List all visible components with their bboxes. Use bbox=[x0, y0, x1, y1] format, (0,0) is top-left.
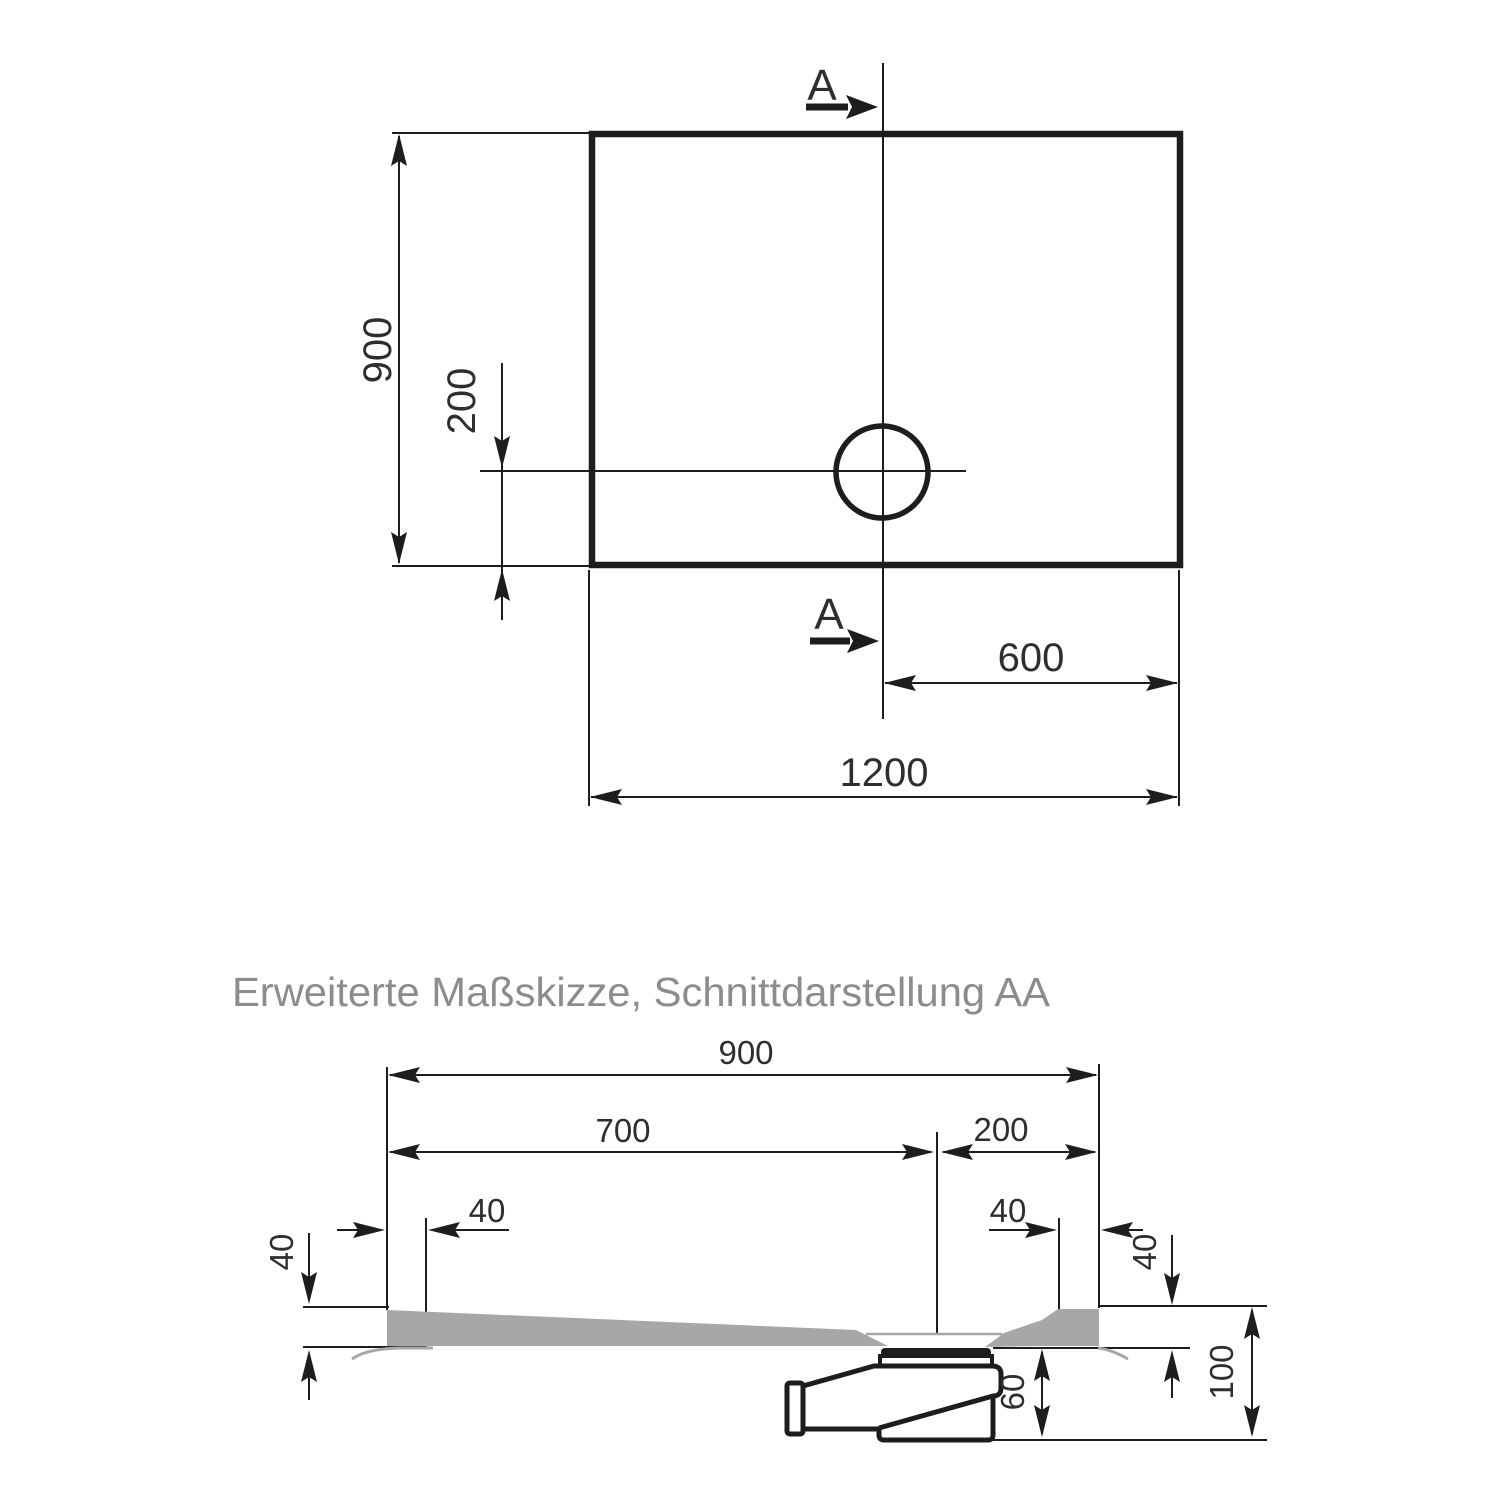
section-drain-right-label: 200 bbox=[973, 1111, 1028, 1148]
top-view: A A 900 200 bbox=[356, 61, 1180, 806]
dimension-rim-right-40: 40 bbox=[989, 1192, 1143, 1238]
dimension-width-1200: 1200 bbox=[590, 751, 1178, 805]
total-height-label: 100 bbox=[1203, 1344, 1240, 1399]
drain-flange bbox=[881, 1348, 991, 1357]
corner-lip-right bbox=[1098, 1348, 1128, 1359]
rim-right-label: 40 bbox=[990, 1192, 1027, 1229]
section-drain-left-label: 700 bbox=[595, 1112, 650, 1149]
dimension-height-900: 900 bbox=[356, 133, 589, 566]
section-overall-label: 900 bbox=[718, 1034, 773, 1071]
edge-right-label: 40 bbox=[1126, 1234, 1163, 1271]
tray-outline-top-view bbox=[592, 134, 1180, 565]
tray-profile-section bbox=[352, 1309, 1128, 1359]
dimension-total-100: 100 bbox=[1203, 1307, 1260, 1437]
drain-trap bbox=[787, 1348, 1001, 1440]
corner-lip-left bbox=[352, 1348, 433, 1359]
rim-left-label: 40 bbox=[469, 1192, 506, 1229]
tray-body-left bbox=[387, 1310, 888, 1346]
dimension-rim-left-40: 40 bbox=[337, 1192, 509, 1238]
edge-left-label: 40 bbox=[263, 1234, 300, 1271]
trap-height-label: 60 bbox=[994, 1374, 1031, 1411]
section-arrow-top-icon bbox=[846, 95, 878, 119]
dimension-drain-right-600: 600 bbox=[884, 636, 1178, 691]
drain-right-dimension-label: 600 bbox=[998, 636, 1065, 680]
drain-trap-outlet-cap bbox=[787, 1383, 803, 1434]
dimension-section-700: 700 bbox=[388, 1112, 934, 1160]
section-marker-top: A bbox=[806, 61, 878, 119]
drain-offset-dimension-label: 200 bbox=[440, 368, 484, 435]
section-title: Erweiterte Maßskizze, Schnittdarstellung… bbox=[232, 969, 1051, 1015]
section-label-top: A bbox=[807, 61, 837, 110]
dimension-section-200: 200 bbox=[941, 1111, 1097, 1160]
width-dimension-label: 1200 bbox=[840, 751, 929, 795]
drawing-canvas: A A 900 200 bbox=[0, 0, 1500, 1500]
section-arrow-bottom-icon bbox=[847, 629, 879, 653]
section-label-bottom: A bbox=[814, 590, 844, 639]
dimension-trap-60: 60 bbox=[994, 1349, 1050, 1437]
tray-body-right bbox=[985, 1309, 1099, 1347]
dimension-drain-offset-200: 200 bbox=[440, 363, 510, 620]
technical-drawing-page: A A 900 200 bbox=[0, 0, 1500, 1500]
dimension-section-900: 900 bbox=[388, 1034, 1098, 1083]
section-marker-bottom: A bbox=[810, 590, 879, 653]
section-view: 900 700 200 40 40 bbox=[263, 1034, 1267, 1440]
height-dimension-label: 900 bbox=[356, 317, 400, 384]
